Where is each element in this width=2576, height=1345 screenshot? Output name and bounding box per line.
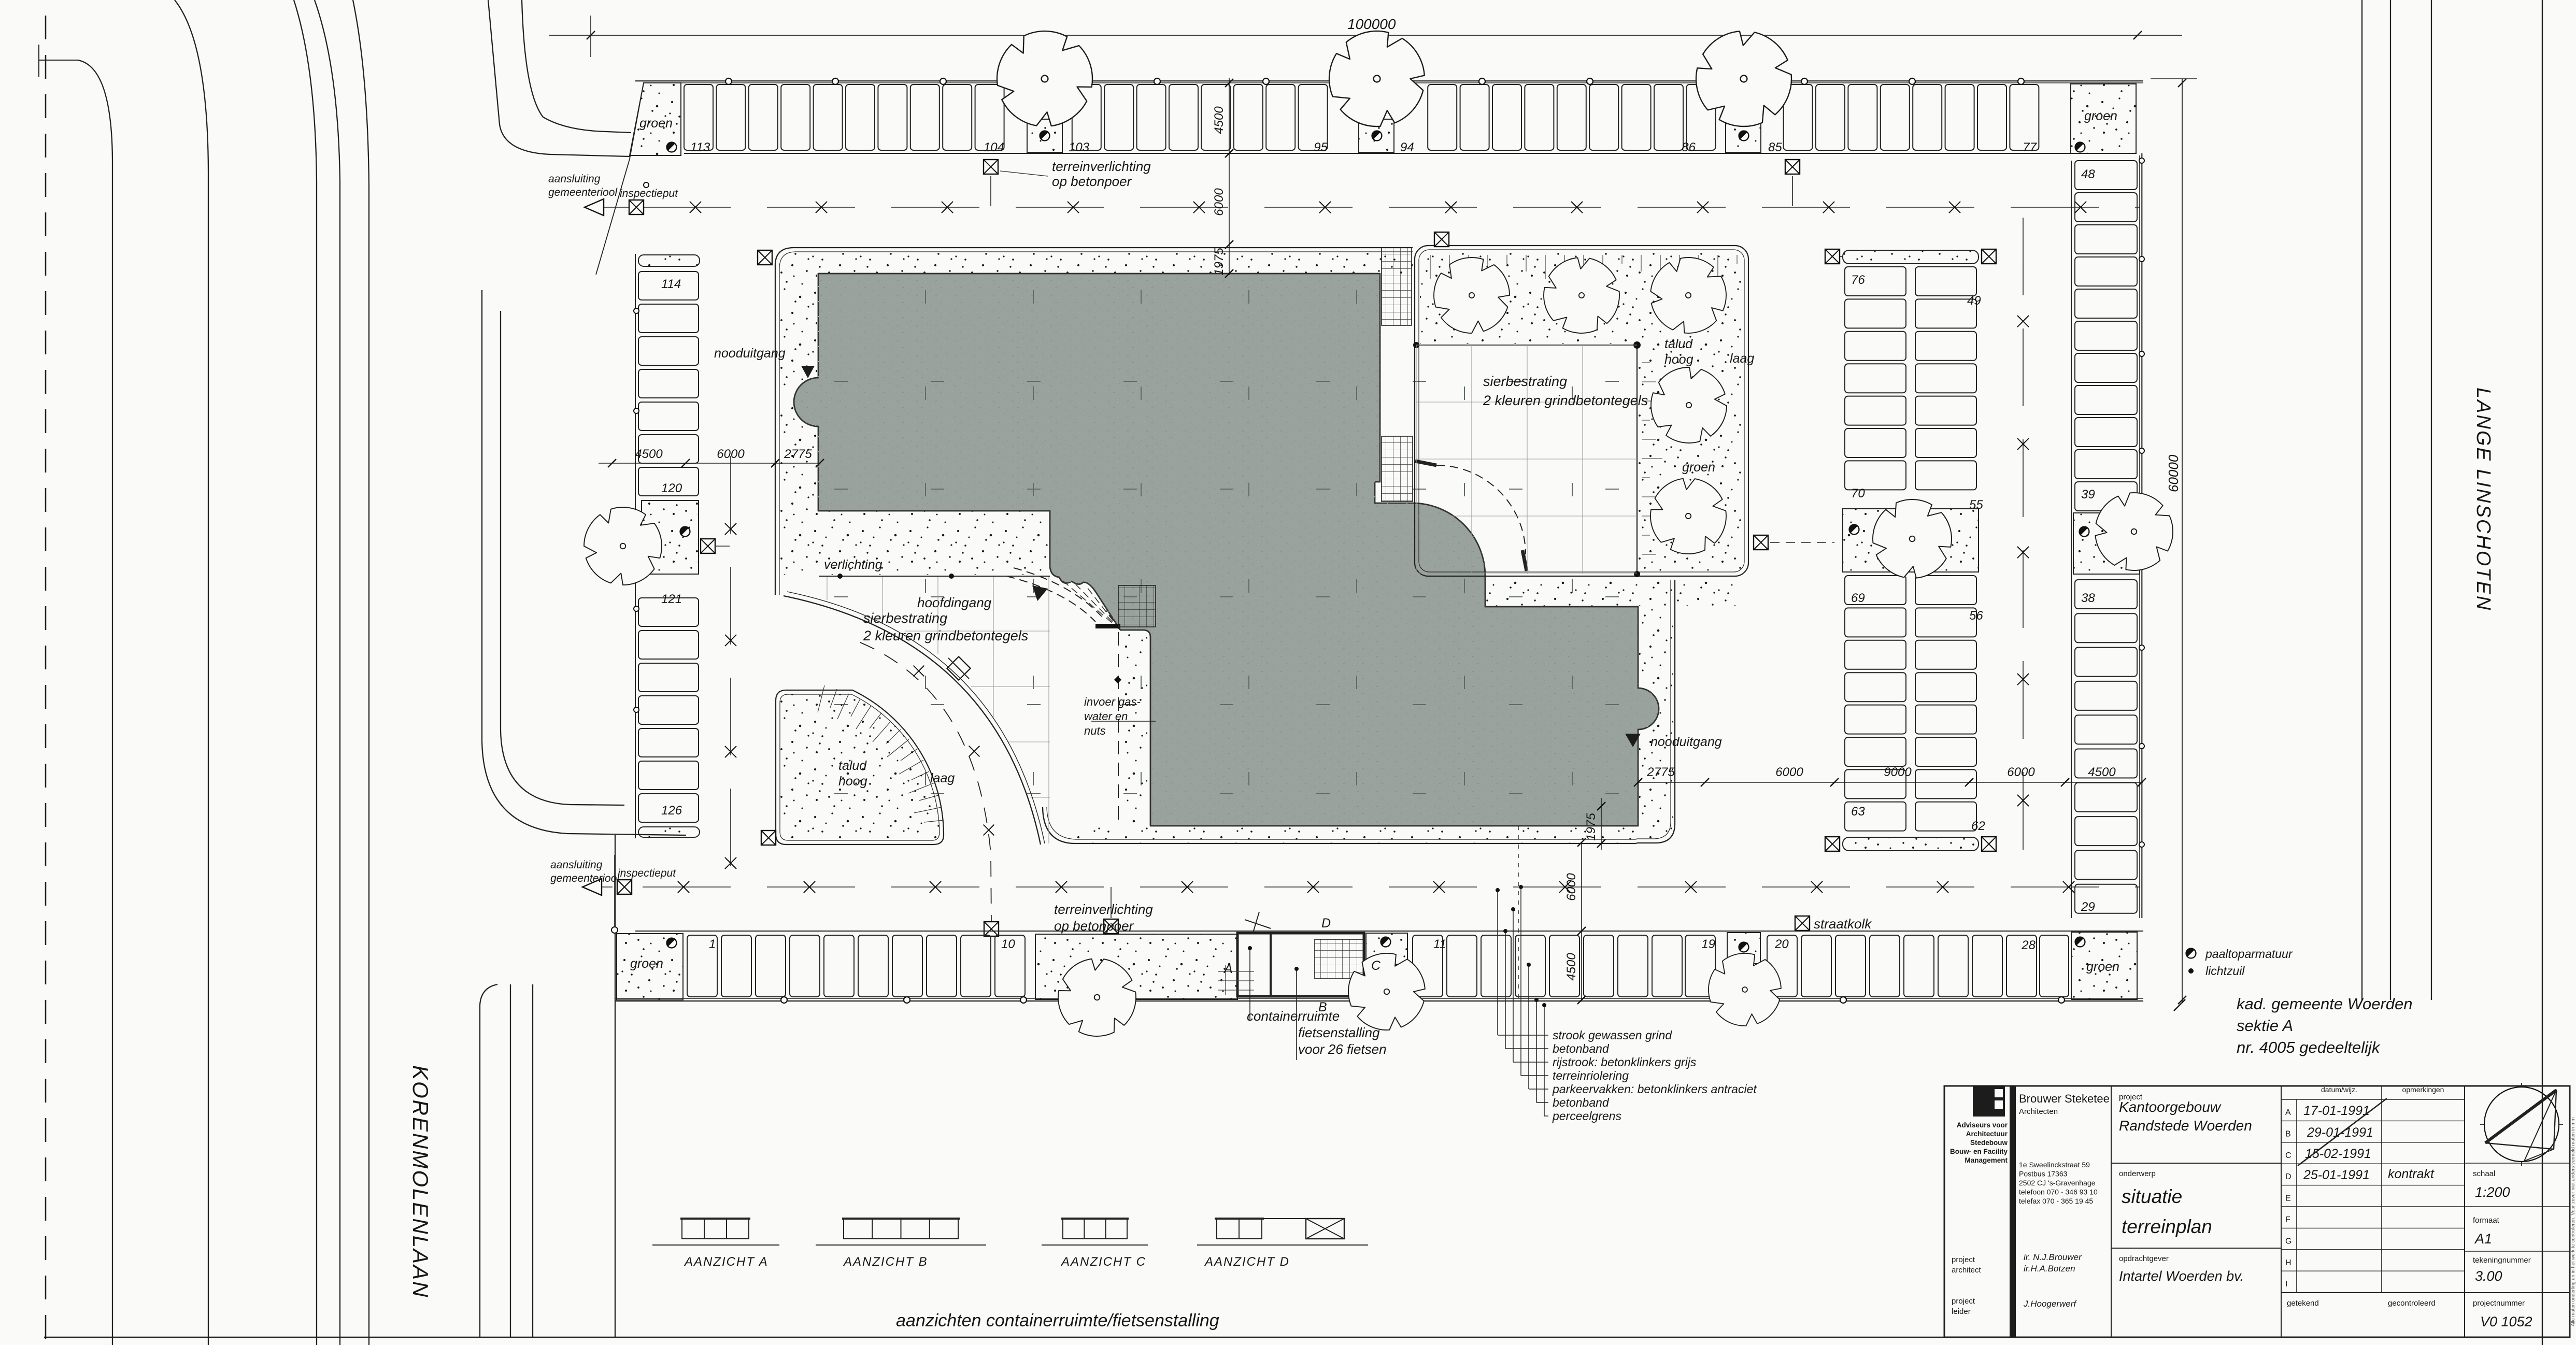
- svg-text:B: B: [2285, 1129, 2291, 1138]
- svg-text:69: 69: [1851, 591, 1865, 605]
- svg-text:groen: groen: [2086, 960, 2119, 974]
- svg-text:Randstede Woerden: Randstede Woerden: [2119, 1118, 2252, 1134]
- svg-text:4500: 4500: [1564, 953, 1578, 981]
- svg-text:AANZICHT C: AANZICHT C: [1060, 1255, 1146, 1269]
- svg-text:sektie A: sektie A: [2237, 1017, 2293, 1035]
- svg-text:aansluiting: aansluiting: [550, 859, 603, 871]
- svg-text:17-01-1991: 17-01-1991: [2303, 1104, 2370, 1118]
- svg-text:Intartel Woerden bv.: Intartel Woerden bv.: [2119, 1268, 2244, 1284]
- svg-text:121: 121: [661, 592, 682, 606]
- svg-text:4500: 4500: [635, 447, 663, 461]
- svg-text:Kantoorgebouw: Kantoorgebouw: [2119, 1099, 2222, 1115]
- svg-text:gecontroleerd: gecontroleerd: [2388, 1299, 2436, 1308]
- svg-text:AANZICHT B: AANZICHT B: [843, 1255, 928, 1269]
- svg-text:AANZICHT D: AANZICHT D: [1204, 1255, 1290, 1269]
- svg-text:water en: water en: [1084, 710, 1128, 723]
- svg-text:1975: 1975: [1212, 248, 1226, 276]
- svg-text:groen: groen: [2084, 109, 2117, 123]
- svg-text:verlichting: verlichting: [824, 557, 883, 572]
- svg-text:C: C: [2285, 1151, 2292, 1160]
- svg-text:hoog: hoog: [838, 774, 867, 789]
- svg-text:Postbus 17363: Postbus 17363: [2019, 1170, 2068, 1178]
- svg-text:J.Hoogerwerf: J.Hoogerwerf: [2023, 1299, 2077, 1309]
- svg-text:groen: groen: [630, 956, 663, 971]
- svg-text:nr. 4005 gedeeltelijk: nr. 4005 gedeeltelijk: [2237, 1038, 2381, 1056]
- svg-text:77: 77: [2023, 140, 2037, 154]
- svg-text:aanzichten containerruimte/fie: aanzichten containerruimte/fietsenstalli…: [896, 1311, 1219, 1330]
- svg-text:A1: A1: [2474, 1231, 2492, 1247]
- svg-text:Stedebouw: Stedebouw: [1970, 1139, 2008, 1147]
- svg-text:1e Sweelinckstraat 59: 1e Sweelinckstraat 59: [2019, 1161, 2090, 1169]
- svg-text:62: 62: [1971, 819, 1985, 833]
- svg-text:4500: 4500: [2088, 765, 2116, 779]
- svg-text:betonband: betonband: [1553, 1096, 1610, 1109]
- svg-text:architect: architect: [1952, 1266, 1982, 1275]
- svg-text:63: 63: [1851, 805, 1865, 819]
- svg-text:gemeenteriool: gemeenteriool: [550, 872, 620, 884]
- svg-text:nooduitgang: nooduitgang: [1650, 735, 1722, 749]
- svg-text:projectnummer: projectnummer: [2473, 1299, 2525, 1308]
- svg-text:containerruimte: containerruimte: [1247, 1008, 1340, 1024]
- svg-text:inspectieput: inspectieput: [620, 188, 678, 199]
- svg-text:project: project: [1952, 1297, 1975, 1306]
- svg-text:Alle maten onderling en in het: Alle maten onderling en in het werk te c…: [2570, 1117, 2576, 1326]
- svg-text:29: 29: [2081, 900, 2095, 914]
- svg-text:15-02-1991: 15-02-1991: [2305, 1147, 2371, 1161]
- svg-text:6000: 6000: [1775, 765, 1803, 779]
- svg-text:project: project: [1952, 1255, 1975, 1264]
- svg-text:sierbestrating: sierbestrating: [863, 610, 947, 626]
- svg-text:20: 20: [1774, 937, 1789, 951]
- svg-text:60000: 60000: [2166, 454, 2181, 492]
- svg-text:getekend: getekend: [2287, 1299, 2319, 1308]
- svg-text:76: 76: [1851, 273, 1865, 287]
- svg-text:6000: 6000: [2007, 765, 2035, 779]
- svg-text:19: 19: [1701, 937, 1715, 951]
- svg-text:talud: talud: [1664, 337, 1693, 351]
- svg-text:9000: 9000: [1884, 765, 1912, 779]
- svg-text:LANGE LINSCHOTEN: LANGE LINSCHOTEN: [2472, 388, 2494, 611]
- svg-text:70: 70: [1851, 487, 1865, 500]
- svg-text:28: 28: [2021, 938, 2036, 952]
- svg-text:invoer gas-: invoer gas-: [1084, 695, 1141, 708]
- svg-text:schaal: schaal: [2473, 1169, 2495, 1178]
- svg-text:D: D: [2285, 1172, 2292, 1181]
- svg-text:AANZICHT A: AANZICHT A: [684, 1255, 768, 1269]
- svg-text:48: 48: [2081, 167, 2095, 181]
- svg-text:formaat: formaat: [2473, 1216, 2500, 1225]
- svg-text:terreinplan: terreinplan: [2122, 1216, 2212, 1237]
- svg-text:11: 11: [1433, 937, 1446, 951]
- svg-text:D: D: [1321, 916, 1331, 931]
- svg-text:Bouw- en Facility: Bouw- en Facility: [1950, 1148, 2008, 1155]
- svg-text:55: 55: [1969, 498, 1983, 512]
- svg-text:2 kleuren grindbetontegels: 2 kleuren grindbetontegels: [1483, 393, 1648, 408]
- svg-text:straatkolk: straatkolk: [1814, 916, 1872, 932]
- svg-text:85: 85: [1768, 140, 1782, 154]
- svg-text:3.00: 3.00: [2475, 1268, 2502, 1284]
- svg-text:V0 1052: V0 1052: [2480, 1314, 2532, 1329]
- svg-text:95: 95: [1314, 140, 1328, 154]
- svg-text:Adviseurs voor: Adviseurs voor: [1957, 1121, 2008, 1129]
- svg-text:6000: 6000: [1212, 188, 1226, 216]
- svg-text:56: 56: [1969, 609, 1983, 623]
- svg-text:2502 CJ 's-Gravenhage: 2502 CJ 's-Gravenhage: [2019, 1179, 2096, 1187]
- svg-text:situatie: situatie: [2122, 1186, 2182, 1207]
- svg-text:A: A: [2285, 1108, 2291, 1117]
- svg-text:paaltoparmatuur: paaltoparmatuur: [2205, 947, 2293, 961]
- svg-text:talud: talud: [838, 759, 867, 773]
- svg-text:1975: 1975: [1584, 813, 1598, 841]
- svg-text:38: 38: [2081, 591, 2095, 605]
- svg-text:39: 39: [2081, 488, 2095, 502]
- svg-text:terreinverlichting: terreinverlichting: [1054, 902, 1153, 917]
- svg-text:opmerkingen: opmerkingen: [2402, 1085, 2444, 1094]
- svg-text:groen: groen: [1682, 460, 1715, 475]
- svg-text:kontrakt: kontrakt: [2388, 1167, 2435, 1181]
- svg-text:datum/wijz.: datum/wijz.: [2321, 1085, 2357, 1094]
- svg-text:F: F: [2285, 1215, 2290, 1224]
- svg-text:25-01-1991: 25-01-1991: [2303, 1168, 2370, 1182]
- svg-text:29-01-1991: 29-01-1991: [2307, 1125, 2373, 1140]
- svg-text:telefoon 070 - 346 93 10: telefoon 070 - 346 93 10: [2019, 1188, 2098, 1196]
- svg-text:kad. gemeente Woerden: kad. gemeente Woerden: [2237, 995, 2413, 1013]
- svg-text:op betonpoer: op betonpoer: [1052, 174, 1132, 189]
- svg-text:inspectieput: inspectieput: [618, 867, 676, 879]
- svg-text:fietsenstalling: fietsenstalling: [1298, 1025, 1380, 1040]
- svg-text:E: E: [2285, 1194, 2291, 1203]
- svg-text:4500: 4500: [1212, 106, 1226, 134]
- svg-text:laag: laag: [930, 771, 955, 785]
- svg-text:betonband: betonband: [1553, 1042, 1610, 1055]
- svg-text:104: 104: [984, 140, 1004, 154]
- svg-text:A: A: [1223, 962, 1233, 976]
- svg-text:2775: 2775: [784, 447, 812, 461]
- svg-text:100000: 100000: [1347, 16, 1396, 32]
- svg-text:hoog: hoog: [1664, 352, 1693, 367]
- svg-text:KORENMOLENLAAN: KORENMOLENLAAN: [408, 1065, 433, 1298]
- svg-text:10: 10: [1001, 937, 1015, 951]
- svg-text:telefax 070 - 365 19 45: telefax 070 - 365 19 45: [2019, 1197, 2093, 1205]
- svg-text:rijstrook: betonklinkers grijs: rijstrook: betonklinkers grijs: [1553, 1055, 1697, 1069]
- svg-text:C: C: [1371, 958, 1381, 973]
- svg-text:Management: Management: [1965, 1156, 2008, 1164]
- svg-text:hoofdingang: hoofdingang: [917, 595, 992, 610]
- svg-text:ir.H.A.Botzen: ir.H.A.Botzen: [2024, 1264, 2075, 1274]
- svg-text:94: 94: [1400, 140, 1414, 154]
- svg-text:nuts: nuts: [1084, 724, 1106, 737]
- svg-text:H: H: [2285, 1258, 2292, 1267]
- svg-text:1: 1: [709, 937, 716, 951]
- svg-text:49: 49: [1967, 294, 1981, 308]
- svg-text:terreinriolering: terreinriolering: [1553, 1069, 1629, 1082]
- svg-text:Architecten: Architecten: [2019, 1107, 2058, 1116]
- svg-text:1:200: 1:200: [2475, 1184, 2510, 1200]
- svg-text:tekeningnummer: tekeningnummer: [2473, 1256, 2531, 1265]
- svg-text:2775: 2775: [1646, 765, 1675, 779]
- svg-text:86: 86: [1682, 140, 1696, 154]
- svg-text:onderwerp: onderwerp: [2119, 1169, 2156, 1178]
- svg-text:leider: leider: [1952, 1307, 1971, 1316]
- svg-text:nooduitgang: nooduitgang: [714, 346, 786, 361]
- svg-text:ir. N.J.Brouwer: ir. N.J.Brouwer: [2024, 1252, 2082, 1262]
- svg-text:perceelgrens: perceelgrens: [1552, 1109, 1621, 1123]
- svg-text:2 kleuren grindbetontegels: 2 kleuren grindbetontegels: [863, 628, 1028, 643]
- svg-text:opdrachtgever: opdrachtgever: [2119, 1254, 2169, 1263]
- svg-text:6000: 6000: [1564, 873, 1578, 901]
- svg-text:op betonpoer: op betonpoer: [1054, 918, 1134, 934]
- svg-text:aansluiting: aansluiting: [548, 173, 601, 185]
- svg-text:gemeenteriool: gemeenteriool: [548, 187, 618, 198]
- svg-text:sierbestrating: sierbestrating: [1483, 374, 1567, 389]
- svg-text:I: I: [2285, 1280, 2287, 1289]
- svg-text:103: 103: [1069, 140, 1090, 154]
- svg-text:parkeervakken: betonklinkers a: parkeervakken: betonklinkers antraciet: [1552, 1082, 1757, 1096]
- svg-text:126: 126: [661, 804, 682, 818]
- svg-text:Architectuur: Architectuur: [1966, 1130, 2008, 1138]
- svg-text:G: G: [2285, 1237, 2292, 1246]
- svg-text:strook gewassen grind: strook gewassen grind: [1553, 1028, 1672, 1042]
- svg-text:lichtzuil: lichtzuil: [2205, 964, 2245, 978]
- svg-text:113: 113: [690, 140, 710, 154]
- svg-text:6000: 6000: [717, 447, 745, 461]
- svg-text:voor 26 fietsen: voor 26 fietsen: [1298, 1041, 1387, 1057]
- svg-text:terreinverlichting: terreinverlichting: [1052, 159, 1151, 174]
- svg-text:Brouwer Steketee: Brouwer Steketee: [2019, 1092, 2110, 1105]
- svg-text:120: 120: [661, 481, 682, 495]
- svg-text:groen: groen: [639, 116, 673, 131]
- svg-text:114: 114: [661, 277, 681, 291]
- svg-text:laag: laag: [1730, 351, 1754, 366]
